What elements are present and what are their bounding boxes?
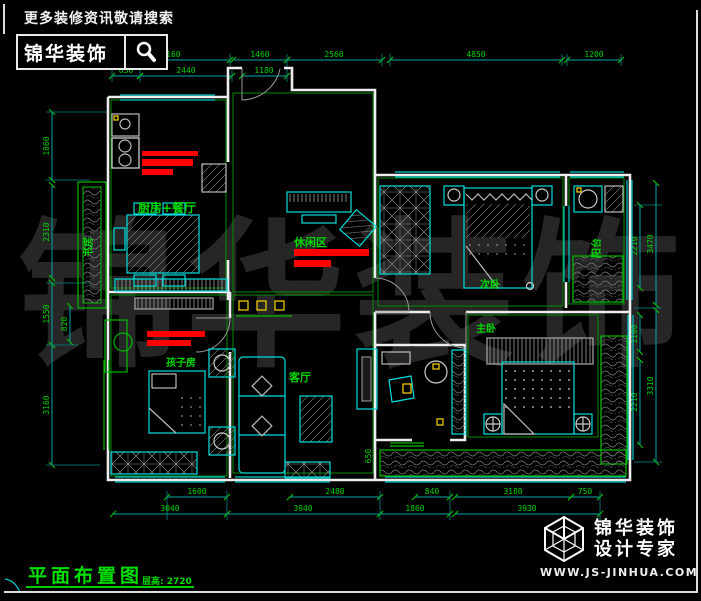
dining-table xyxy=(114,203,199,286)
dim-label: 2310 xyxy=(42,222,51,241)
brand-block: 锦华装饰 设计专家 WWW.JS-JINHUA.COM xyxy=(540,514,698,579)
dim-label: 2210 xyxy=(630,236,639,255)
dim-label: 1100 xyxy=(630,324,639,343)
furniture xyxy=(105,114,627,478)
dim-label: 2210 xyxy=(630,392,639,411)
magnifier-icon xyxy=(124,36,166,68)
brand-website: WWW.JS-JINHUA.COM xyxy=(540,566,698,579)
dim-label: 1460 xyxy=(250,50,269,59)
floorplan-screenshot: 锦华装饰 xyxy=(0,0,701,601)
dim-label: 1600 xyxy=(187,487,206,496)
dim-label: 3930 xyxy=(517,504,536,513)
room-label-kids-room: 孩子房 xyxy=(166,356,196,369)
dim-label: 1860 xyxy=(42,136,51,155)
dim-label: 3160 xyxy=(42,395,51,414)
kids-room-furniture xyxy=(105,298,213,474)
room-label-master-bedroom: 主卧 xyxy=(476,322,496,335)
dim-label: 2480 xyxy=(325,487,344,496)
dim-label: 3310 xyxy=(646,376,655,395)
room-label-kitchen-dining: 厨房+餐厅 xyxy=(138,200,196,215)
brand-tagline: 设计专家 xyxy=(594,539,678,560)
room-label-leisure: 休闲区 xyxy=(293,235,327,249)
dim-label: 750 xyxy=(578,487,593,496)
second-bedroom-furniture xyxy=(444,186,552,290)
room-label-study: 书房 xyxy=(82,237,95,257)
dim-label: 1550 xyxy=(42,304,51,323)
dim-label: 840 xyxy=(425,487,440,496)
dim-label: 650 xyxy=(364,449,373,464)
dim-label: 1200 xyxy=(584,50,603,59)
dim-label: 4850 xyxy=(466,50,485,59)
bottom-border-line xyxy=(4,591,698,593)
floor-plan-drawing: 3160 1460 2560 4850 1200 630 2440 1180 1… xyxy=(0,0,701,601)
header-slogan: 更多装修资讯敬请搜索 xyxy=(24,8,174,28)
drawing-title: 平面布置图 xyxy=(28,561,143,588)
room-label-living: 客厅 xyxy=(288,370,311,384)
room-label-second-bedroom: 次卧 xyxy=(480,278,500,291)
dim-label: 3940 xyxy=(293,504,312,513)
brand-name: 锦华装饰 xyxy=(594,518,678,539)
living-room-furniture xyxy=(209,301,377,478)
brand-search-logo: 锦华装饰 xyxy=(16,34,168,70)
right-border-line xyxy=(696,10,698,593)
dim-label: 2440 xyxy=(176,66,195,75)
title-underline xyxy=(26,586,194,588)
dim-label: 1860 xyxy=(405,504,424,513)
dim-label: 3180 xyxy=(503,487,522,496)
dim-label: 2560 xyxy=(324,50,343,59)
page-frame-marks xyxy=(4,4,20,593)
dim-label: 820 xyxy=(60,317,69,332)
room-label-balcony: 阳台 xyxy=(590,238,603,258)
dim-label: 3040 xyxy=(160,504,179,513)
cube-logo-icon xyxy=(540,514,588,564)
dim-label: 3470 xyxy=(646,234,655,253)
bathroom-fixtures xyxy=(382,350,466,434)
brand-logo-text: 锦华装饰 xyxy=(18,36,124,68)
master-bedroom-furniture xyxy=(380,336,627,476)
dim-label: 1180 xyxy=(254,66,273,75)
